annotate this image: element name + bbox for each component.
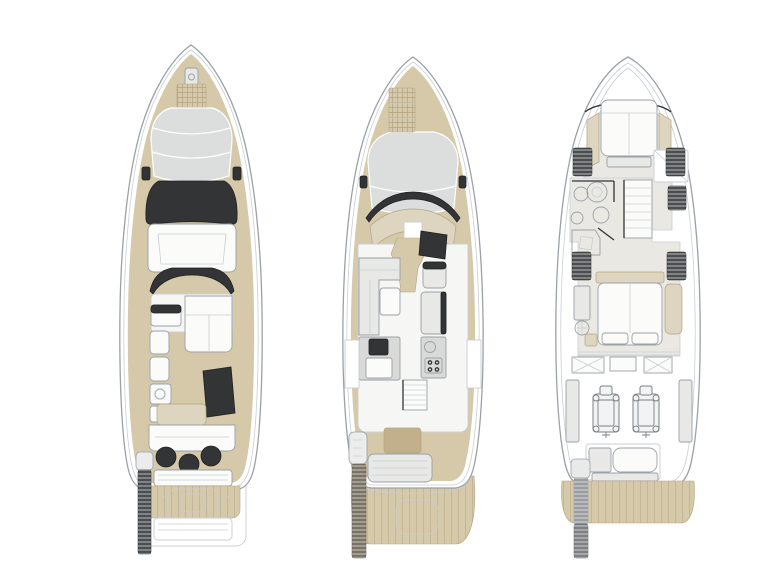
- wardrobe-port-slats: [572, 252, 591, 280]
- cleat-starboard: [233, 167, 241, 180]
- deck-plans-svg: [0, 0, 768, 576]
- salon-table: [380, 288, 400, 315]
- passerelle-base: [571, 459, 590, 478]
- stool-3: [201, 446, 221, 466]
- vanity-dresser: [574, 286, 590, 320]
- passerelle-treads: [352, 464, 366, 558]
- engine-room-shelf-port: [566, 380, 579, 442]
- helm-dashboard: [151, 305, 181, 313]
- lower-deck-plan: [556, 57, 700, 558]
- anchor-hatch-grid: [177, 84, 206, 110]
- hardtop-roof: [148, 224, 236, 272]
- stairs-companionway: [624, 180, 652, 238]
- pillow-port: [602, 333, 628, 344]
- master-sofa: [665, 284, 682, 334]
- wardrobe-starboard-slats: [667, 252, 686, 280]
- tank-hatches: [572, 357, 672, 373]
- passerelle-base: [136, 452, 153, 470]
- stool-1: [156, 447, 176, 467]
- transom-step: [154, 470, 232, 486]
- bow-sunpad: [151, 108, 232, 182]
- flybridge-deck-plan: [120, 45, 262, 554]
- side-door-starboard: [467, 340, 481, 388]
- swim-platform-step: [154, 518, 232, 540]
- aft-u-sofa: [149, 425, 235, 451]
- helm-seat-back: [423, 262, 446, 269]
- helm-seat: [150, 331, 169, 354]
- pillow-starboard: [632, 333, 658, 344]
- cockpit-table: [384, 428, 421, 453]
- passerelle-lower: [571, 459, 590, 558]
- master-bed-footboard: [596, 272, 664, 283]
- transom-shelf: [592, 473, 658, 481]
- galley-oven: [369, 339, 388, 355]
- flybridge-table: [203, 367, 235, 417]
- sunroof: [146, 181, 237, 224]
- nightstand-port: [585, 334, 597, 346]
- anchor-hatch-grid: [389, 88, 415, 132]
- flybridge-lounger: [185, 296, 232, 352]
- engine-starboard: [633, 386, 659, 438]
- cleat-port: [360, 176, 367, 188]
- companion-seat: [150, 357, 169, 381]
- crew-berth: [613, 448, 657, 472]
- passerelle-arm-lines: [574, 478, 588, 524]
- vip-bed-bench: [607, 157, 651, 167]
- windlass: [185, 68, 198, 86]
- garage-deck-planks: [146, 486, 240, 518]
- main-deck-plan: [343, 57, 483, 558]
- helm-console: [419, 231, 447, 259]
- passerelle-flybridge: [136, 452, 153, 554]
- locker-starboard-slats: [666, 148, 685, 176]
- stairs-down: [403, 380, 427, 410]
- locker-starboard-2-slats: [668, 186, 686, 210]
- passerelle-treads: [138, 470, 151, 554]
- engine-room-shelf-starboard: [679, 380, 692, 442]
- passerelle-steps-lines: [574, 524, 588, 558]
- crew-cabinet: [589, 448, 611, 472]
- yacht-deck-plans-image: [0, 0, 768, 576]
- engine-port: [593, 386, 619, 438]
- aft-sun-cushion: [157, 404, 206, 425]
- tv-cabinet: [441, 292, 446, 334]
- galley-fridge: [366, 358, 392, 378]
- cleat-starboard: [459, 176, 466, 188]
- side-door-port: [345, 340, 359, 388]
- cleat-port: [142, 167, 150, 180]
- locker-port-slats: [573, 148, 592, 176]
- wetbar-top: [150, 384, 171, 404]
